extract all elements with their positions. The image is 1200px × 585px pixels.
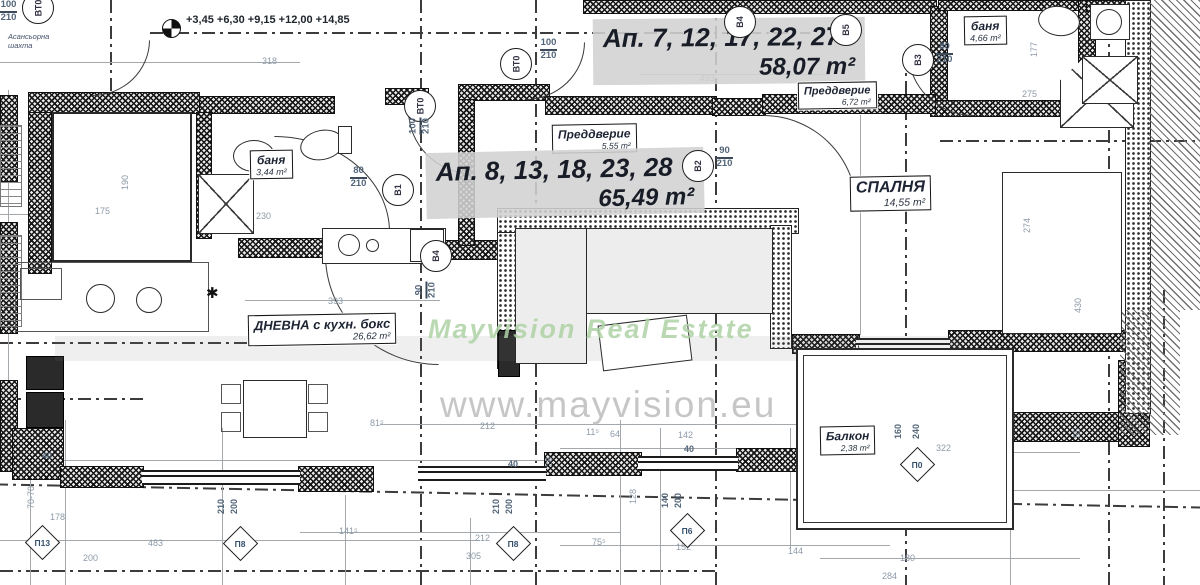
- faucet: [366, 239, 379, 252]
- wall: [28, 112, 52, 274]
- door-size-v3: 80210: [936, 42, 953, 66]
- wall: [238, 238, 330, 258]
- stairs: [0, 125, 22, 207]
- door-arc: [763, 115, 857, 209]
- dim-text: 210: [491, 499, 501, 514]
- dim-text: 81⁵: [370, 418, 384, 428]
- dim-line: [860, 115, 861, 335]
- wall: [712, 98, 766, 116]
- door-size-vt0-top-left: 100210: [0, 0, 17, 24]
- door-tag-v5-upper: В5: [830, 14, 862, 46]
- corner-note: Асансьорна шахта: [8, 32, 49, 51]
- chair: [221, 412, 241, 432]
- apartment-8-area: 65,49 m²: [436, 183, 695, 217]
- dim-text: 28: [544, 457, 554, 467]
- chair: [308, 412, 328, 432]
- door-tag-v3: В3: [902, 44, 934, 76]
- toilet-tank: [338, 126, 352, 154]
- dim-text: 178: [50, 512, 65, 522]
- door-size-v4: 90210: [414, 282, 438, 299]
- dim-text: 318: [262, 56, 277, 66]
- room-label-dnevna: ДНЕВНА с кухн. бокс 26,62 m²: [248, 313, 397, 347]
- dim-text: 160: [893, 424, 903, 439]
- room-label-banya-left: баня 3,44 m²: [250, 150, 293, 180]
- dim-text: 11⁵: [586, 427, 599, 437]
- door-size-vt0-upper: 100210: [540, 38, 557, 62]
- dim-text: 142: [678, 430, 693, 440]
- kitchen-cabinet: [20, 268, 62, 300]
- window-tag-p8-left: П8: [223, 526, 258, 561]
- shaft-x-box: [1082, 56, 1138, 104]
- door-arc: [92, 40, 150, 96]
- sink-bowl: [338, 234, 360, 256]
- dim-text: 200: [504, 499, 514, 514]
- dim-text: 180: [900, 553, 915, 563]
- room-label-banya-right: баня 4,66 m²: [964, 16, 1007, 46]
- dim-text: 40: [684, 444, 694, 454]
- floorplan-canvas: Mayvision Real Estate www.mayvision.eu: [0, 0, 1200, 585]
- cabinet: [26, 392, 64, 428]
- bed: [1002, 172, 1122, 334]
- dim-text: 141⁵: [339, 526, 358, 536]
- kitchen-sink: [136, 287, 162, 313]
- dim-text: 230: [256, 211, 271, 221]
- dim-text: 140: [660, 493, 670, 508]
- dim-text: 430: [1073, 298, 1083, 313]
- apartment-8-title: Ап. 8, 13, 18, 23, 28: [435, 151, 694, 188]
- dim-line: [620, 420, 621, 585]
- dim-line: [790, 428, 791, 548]
- dim-text: 393: [328, 296, 343, 306]
- dim-text: 40: [508, 459, 518, 469]
- window-band: [638, 456, 738, 471]
- wall: [28, 92, 200, 114]
- fridge: [26, 356, 64, 390]
- dim-line: [0, 62, 300, 63]
- dim-text: 64: [610, 429, 620, 439]
- cooktop-burner: [86, 284, 115, 313]
- door-size-vt0-hall: 100210: [408, 118, 432, 135]
- asterisk-mark: ✱: [206, 284, 219, 302]
- chair: [308, 384, 328, 404]
- wall: [544, 452, 642, 476]
- dim-line: [345, 495, 346, 585]
- door-tag-v2: В2: [682, 150, 714, 182]
- dim-text: 190: [120, 175, 130, 190]
- dim-text: 70-70: [26, 486, 36, 509]
- dim-line: [0, 460, 550, 461]
- wall: [298, 466, 374, 492]
- shower-tray: [198, 174, 254, 234]
- dim-line: [820, 558, 1080, 559]
- dim-text: 177: [1029, 42, 1039, 57]
- door-tag-vt0-top-left: ВТ0: [22, 0, 54, 24]
- wall: [545, 96, 717, 115]
- wall: [583, 0, 937, 14]
- door-tag-vt0-upper: ВТ0: [500, 48, 532, 80]
- chair: [221, 384, 241, 404]
- door-size-v2: 90210: [716, 146, 733, 170]
- wall: [12, 428, 64, 480]
- door-tag-v4-upper: В4: [724, 6, 756, 38]
- watermark-brand: Mayvision Real Estate: [428, 314, 754, 345]
- room-label-balkon: Балкон 2,38 m²: [820, 426, 876, 456]
- apartment-7-area: 58,07 m²: [603, 53, 855, 83]
- dim-text: 322: [936, 443, 951, 453]
- room-label-preddverie-top: Преддверие 6,72 m²: [798, 81, 877, 109]
- dim-text: 40: [42, 451, 52, 461]
- dim-text: 483: [148, 538, 163, 548]
- dim-text: 240: [911, 424, 921, 439]
- dim-text: 144: [788, 546, 803, 556]
- window-band: [142, 470, 300, 485]
- dim-text: 210: [216, 499, 226, 514]
- level-marker-icon: [162, 19, 181, 38]
- door-tag-v4: В4: [420, 240, 452, 272]
- elevation-marks: +3,45 +6,30 +9,15 +12,00 +14,85: [186, 14, 350, 26]
- adjacent-building-hatch: [1149, 0, 1200, 310]
- dim-text: 200: [83, 553, 98, 563]
- door-size-v1: 80210: [350, 166, 367, 190]
- window-band: [418, 466, 546, 481]
- dim-text: 284: [882, 571, 897, 581]
- apartment-8-label: Ап. 8, 13, 18, 23, 28 65,49 m²: [425, 147, 704, 219]
- axis-line: [0, 570, 720, 572]
- dim-line: [560, 545, 890, 546]
- dim-text: 274: [1022, 218, 1032, 233]
- dim-text: 128: [628, 489, 638, 504]
- dim-text: 212: [475, 533, 490, 543]
- wall: [60, 466, 144, 488]
- dim-text: 275: [1022, 89, 1037, 99]
- dim-text: 75⁵: [592, 537, 606, 547]
- dim-text: 175: [95, 206, 110, 216]
- dim-text: 200: [673, 493, 683, 508]
- watermark-url: www.mayvision.eu: [440, 384, 776, 426]
- insulated-wall: [770, 225, 792, 349]
- dim-line: [65, 420, 66, 585]
- dim-text: 200: [229, 499, 239, 514]
- door-tag-v1: В1: [382, 174, 414, 206]
- dining-table: [243, 380, 307, 438]
- room-label-spalnya: СПАЛНЯ 14,55 m²: [850, 175, 932, 211]
- axis-line: [0, 398, 145, 400]
- dim-text: 55: [1072, 428, 1082, 438]
- dim-text: 305: [466, 551, 481, 561]
- adjacent-building-hatch: [1120, 310, 1180, 435]
- sink-bowl: [1096, 9, 1122, 35]
- axis-line: [0, 483, 1200, 508]
